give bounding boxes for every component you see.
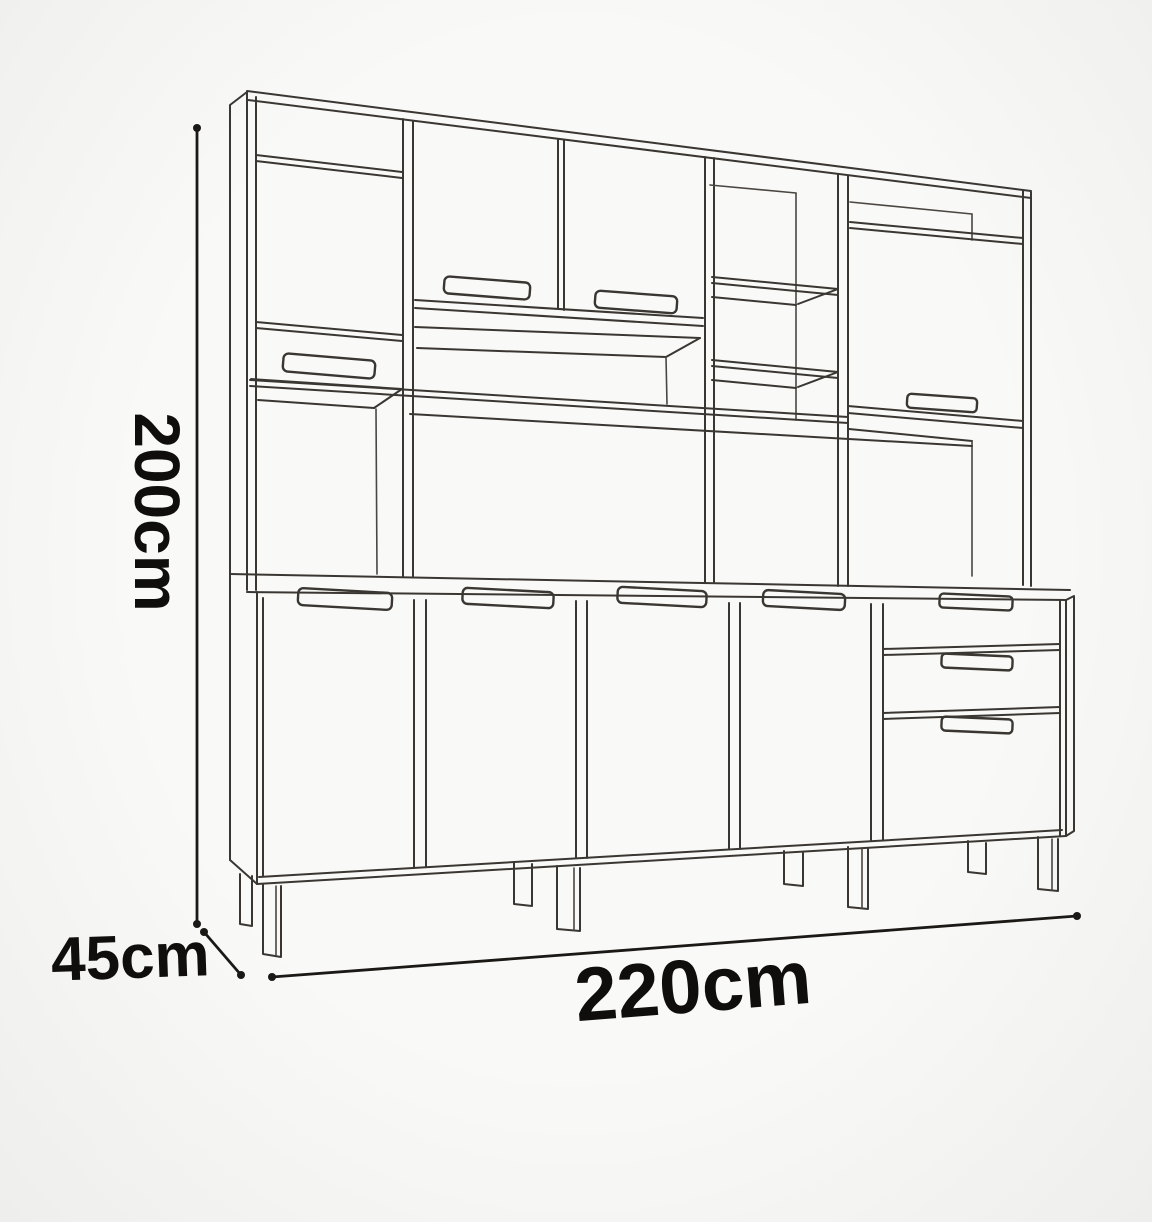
- hutch-top-edge-inner: [248, 100, 1031, 198]
- center-box-bottom-front: [417, 348, 666, 357]
- cabinet-line-drawing: 200cm 45cm 220cm: [0, 0, 1152, 1222]
- cubby-shelf2-front: [712, 380, 796, 388]
- dimension-height: 200cm: [121, 124, 201, 928]
- width-dimension-label: 220cm: [572, 935, 815, 1038]
- drawer-separator-2: [883, 707, 1060, 713]
- base-cabinet: [230, 574, 1074, 884]
- cubby-shelf1-back: [712, 277, 838, 289]
- leg-back-right: [968, 841, 986, 874]
- hutch-left-drawer-handle: [282, 353, 375, 379]
- left-door-bottom: [256, 322, 402, 335]
- hutch-left-side: [230, 92, 247, 574]
- furniture-dimension-diagram: 200cm 45cm 220cm: [0, 0, 1152, 1222]
- hutch-door1-handle: [443, 276, 530, 300]
- left-shelf-front: [258, 400, 374, 408]
- long-shelf-front: [410, 414, 972, 446]
- cubby-shelf1-front: [712, 297, 796, 305]
- leg-front-2: [557, 866, 580, 931]
- long-counter-shelf: [250, 380, 972, 446]
- height-dimension-label: 200cm: [121, 412, 193, 611]
- width-dim-dot-right: [1073, 912, 1081, 920]
- hutch-door2-handle: [594, 290, 677, 313]
- hutch-right-column: [848, 202, 1023, 576]
- hutch-top-edge: [247, 91, 1031, 191]
- right-niche-back: [850, 202, 972, 214]
- depth-dim-dot-bottom: [237, 971, 245, 979]
- center-box-bottom-back: [415, 327, 700, 338]
- base-door4-handle: [763, 590, 846, 610]
- leg-back-left: [240, 874, 252, 926]
- hutch-left-column: [251, 155, 402, 574]
- base-doors-bottom: [259, 830, 1062, 877]
- leg-front-3: [848, 847, 868, 909]
- leg-back-3: [784, 851, 803, 886]
- cubby-top-interior: [710, 185, 796, 193]
- height-dim-dot-top: [193, 124, 201, 132]
- leg-front-left: [263, 884, 281, 957]
- base-door1-handle: [298, 588, 393, 610]
- right-door-bottom: [848, 406, 1023, 421]
- base-door2-handle: [462, 588, 554, 609]
- drawer1-handle: [939, 593, 1013, 610]
- depth-dimension-label: 45cm: [50, 920, 211, 994]
- drawer2-handle: [941, 653, 1013, 670]
- long-shelf-back: [250, 380, 848, 417]
- hutch-open-cubby-column: [710, 185, 838, 420]
- leg-front-right: [1038, 837, 1058, 891]
- width-dim-dot-left: [268, 973, 276, 981]
- hutch-right-door-handle: [907, 394, 978, 413]
- drawer-separator-1: [883, 644, 1060, 649]
- drawer3-handle: [941, 716, 1013, 733]
- cubby-shelf2-back: [712, 360, 838, 372]
- left-cubby-corner: [376, 409, 377, 574]
- base-bottom-edge: [257, 836, 1066, 884]
- dimension-width: 220cm: [268, 912, 1081, 1038]
- dimension-depth: 45cm: [50, 920, 245, 994]
